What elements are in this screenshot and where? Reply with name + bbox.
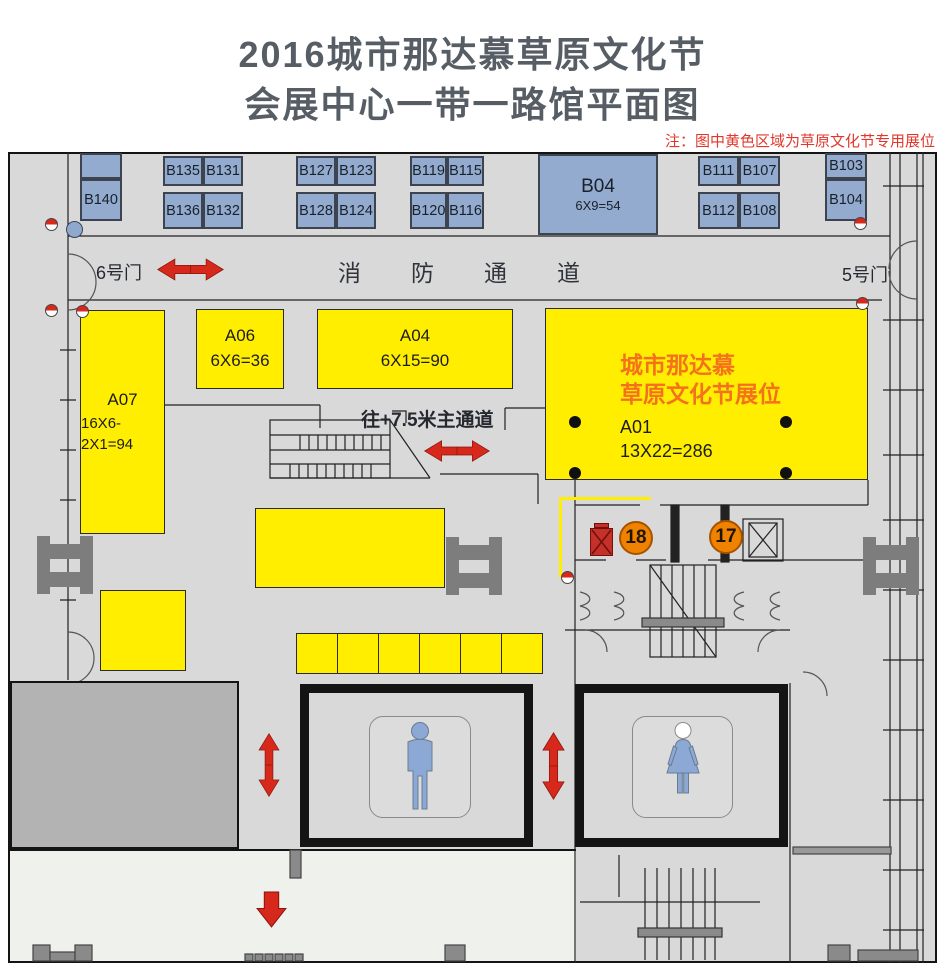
double-arrow-horizontal (424, 437, 490, 465)
booth-a06-id: A06 (225, 324, 255, 349)
ibeam-column (37, 536, 93, 594)
ibeam-column (446, 537, 502, 595)
page-title-line2: 会展中心一带一路馆平面图 (0, 76, 945, 128)
main-corridor-label: 往+7.5米主通道 (361, 405, 494, 432)
fire-hydrant-icon (854, 217, 867, 230)
booth-a01-size: 13X22=286 (620, 439, 781, 463)
legend-note: 注：图中黄色区域为草原文化节专用展位 (665, 130, 935, 151)
booth-b119: B119 (410, 156, 447, 186)
fire-hydrant-icon (76, 305, 89, 318)
double-arrow-vertical (539, 732, 568, 800)
booth-a01-highlight2: 草原文化节展位 (620, 380, 781, 409)
fire-lane-label: 消防通道 (338, 254, 630, 288)
fire-equipment-box (590, 523, 613, 556)
double-arrow-horizontal (157, 255, 224, 284)
booth-b04: B04 6X9=54 (538, 154, 658, 235)
booth-a04-size: 6X15=90 (381, 349, 450, 374)
fire-hydrant-icon (45, 304, 58, 317)
elevator (743, 519, 783, 561)
booth-blank-left (80, 153, 122, 179)
yellow-strip-cell (297, 634, 338, 673)
booth-b120: B120 (410, 192, 447, 229)
gate-6-label: 6号门 (96, 259, 142, 285)
booth-a04-id: A04 (400, 324, 430, 349)
booth-b140: B140 (80, 179, 122, 221)
marker-17: 17 (709, 520, 743, 554)
booth-a01-id: A01 (620, 415, 781, 439)
booth-b04-id: B04 (581, 175, 615, 199)
booth-b116: B116 (447, 192, 484, 229)
booth-a06-size: 6X6=36 (210, 349, 269, 374)
booth-b124: B124 (336, 192, 376, 229)
page-title-line1: 2016城市那达慕草原文化节 (0, 26, 945, 78)
booth-a07-size: 16X6-2X1=94 (81, 413, 164, 457)
floor-plan-page: 2016城市那达慕草原文化节 会展中心一带一路馆平面图 注：图中黄色区域为草原文… (0, 0, 945, 980)
yellow-strip-cell (502, 634, 542, 673)
booth-b111: B111 (698, 156, 739, 186)
double-arrow-vertical (252, 733, 286, 797)
female-figure-icon (657, 721, 709, 813)
male-figure-icon (394, 721, 446, 813)
utility-circle-icon (66, 221, 83, 238)
booth-b107: B107 (739, 156, 780, 186)
ibeam-column (863, 537, 919, 595)
booth-b132: B132 (203, 192, 243, 229)
booth-a07: A07 16X6-2X1=94 (80, 310, 165, 534)
booth-b112: B112 (698, 192, 739, 229)
booth-b136: B136 (163, 192, 203, 229)
booth-b135: B135 (163, 156, 203, 186)
booth-a01-text: 城市那达慕 草原文化节展位 A01 13X22=286 (620, 351, 781, 463)
booth-b131: B131 (203, 156, 243, 186)
booth-a01-highlight1: 城市那达慕 (620, 351, 781, 380)
fire-hydrant-icon (561, 571, 574, 584)
booth-a06: A06 6X6=36 (196, 309, 284, 389)
booth-b104: B104 (825, 179, 867, 221)
column-dot (569, 467, 581, 479)
yellow-strip-cell (420, 634, 461, 673)
column-dot (569, 416, 581, 428)
booth-b115: B115 (447, 156, 484, 186)
stairwell-center (642, 565, 724, 657)
fire-hydrant-icon (856, 297, 869, 310)
yellow-strip-cell (338, 634, 379, 673)
womens-restroom-sign (632, 716, 733, 818)
mens-restroom-sign (369, 716, 471, 818)
booth-a07-id: A07 (107, 388, 137, 413)
booth-b108: B108 (739, 192, 780, 229)
column-dot (780, 416, 792, 428)
equipment-x-icon (590, 528, 613, 556)
fire-hydrant-icon (45, 218, 58, 231)
apron-posts (33, 850, 918, 961)
marker-18: 18 (619, 521, 653, 555)
booth-b127: B127 (296, 156, 336, 186)
booth-b128: B128 (296, 192, 336, 229)
down-arrow (256, 891, 287, 928)
yellow-strip-booths (296, 633, 543, 674)
booth-b04-size: 6X9=54 (575, 198, 620, 214)
booth-b103: B103 (825, 153, 867, 179)
column-dot (780, 467, 792, 479)
yellow-strip-cell (379, 634, 420, 673)
booth-b123: B123 (336, 156, 376, 186)
yellow-strip-cell (461, 634, 502, 673)
yellow-area-unlabeled (255, 508, 445, 588)
booth-a01: 城市那达慕 草原文化节展位 A01 13X22=286 (545, 308, 868, 480)
stairwell-bottom (638, 868, 722, 960)
booth-a04: A04 6X15=90 (317, 309, 513, 389)
yellow-square-unlabeled (100, 590, 186, 671)
gate-5-label: 5号门 (842, 261, 888, 287)
service-block (10, 681, 239, 849)
